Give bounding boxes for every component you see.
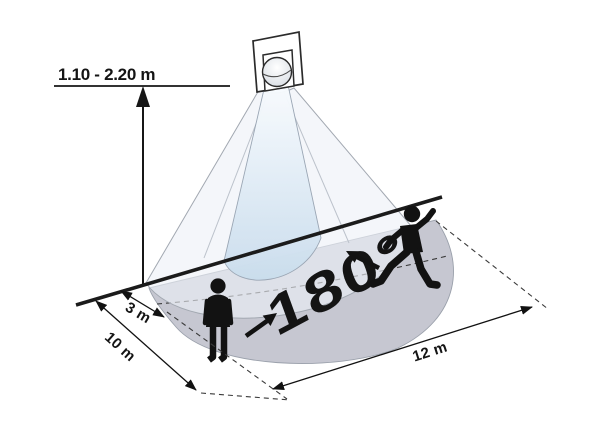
person-standing-arm-left [205, 301, 207, 323]
dimension-12m-label-group: 12 m [411, 339, 450, 366]
dimension-3m-label-group: 3 m [122, 299, 154, 327]
diagram-stage: 1.10 - 2.20 m 180° [0, 0, 600, 442]
mount-height-label: 1.10 - 2.20 m [58, 65, 155, 84]
extension-line-bottom [201, 393, 290, 400]
dimension-3m-label: 3 m [122, 299, 154, 327]
person-standing-torso [206, 295, 230, 328]
person-standing-head [210, 278, 225, 293]
pir-sensor-icon [253, 32, 303, 92]
dimension-12m-label: 12 m [411, 339, 450, 366]
person-standing-arm-right [229, 301, 231, 323]
sensor-lens-icon [263, 58, 292, 87]
person-walking-head [404, 206, 420, 222]
height-arrowhead-icon [136, 86, 150, 107]
sensor-range-diagram: 1.10 - 2.20 m 180° [0, 0, 600, 442]
